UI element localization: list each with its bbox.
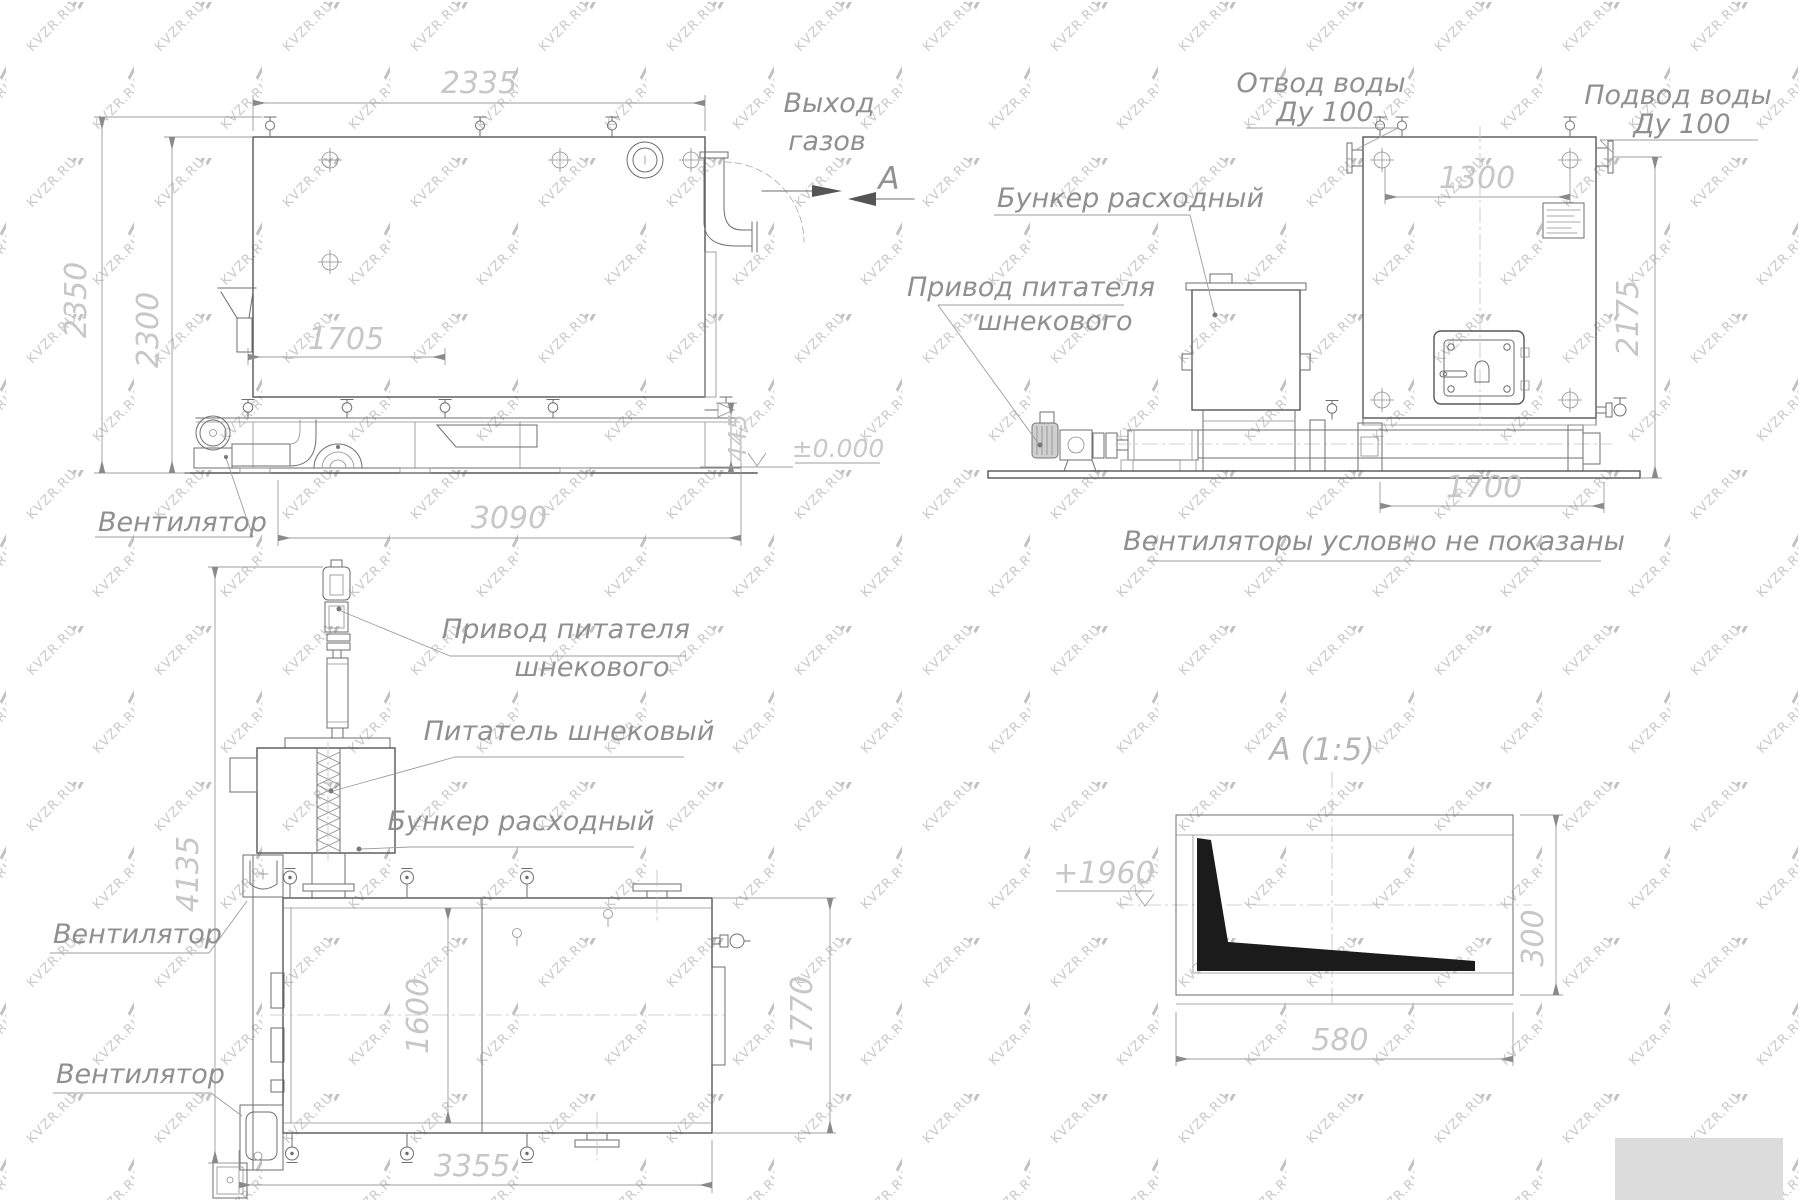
- label-water-inlet-line1: Подвод воды: [1584, 80, 1772, 111]
- label-gas-outlet-line2: газов: [788, 126, 866, 157]
- dim-inner-width: 1600: [401, 978, 436, 1054]
- watermark-layer: [0, 0, 1800, 1200]
- dim-base-length: 1700: [1446, 470, 1522, 505]
- dim-detail-height: 300: [1516, 909, 1551, 966]
- label-fan-lower: Вентилятор: [56, 1059, 225, 1090]
- label-screw-feeder: Питатель шнековый: [424, 716, 715, 747]
- detail-title: А (1:5): [1267, 732, 1374, 768]
- dim-overall-length-plan: 3355: [434, 1149, 510, 1184]
- dim-base-height: 445: [723, 414, 752, 462]
- dim-overall-height: 2350: [59, 262, 94, 338]
- dim-overall-length: 3090: [471, 501, 547, 536]
- label-fan-upper: Вентилятор: [53, 919, 222, 950]
- dim-ground-level: ±0.000: [792, 434, 885, 463]
- boiler-technical-drawing: KVZR.RU: [0, 0, 1800, 1200]
- dim-grate-length: 1705: [308, 322, 384, 357]
- dim-valve-span: 1300: [1439, 161, 1515, 196]
- label-water-inlet-line2: Ду 100: [1632, 109, 1730, 140]
- label-drive-front-line2: шнекового: [978, 306, 1133, 337]
- label-fan-side-view: Вентилятор: [98, 507, 267, 538]
- label-hopper-front: Бункер расходный: [997, 183, 1264, 214]
- note-fans-not-shown: Вентиляторы условно не показаны: [1123, 526, 1625, 557]
- watermark-corner-box: [1615, 1138, 1783, 1200]
- label-hopper-plan: Бункер расходный: [387, 806, 654, 837]
- drawing-canvas: KVZR.RU: [0, 0, 1800, 1200]
- section-letter: А: [876, 161, 899, 197]
- dim-boiler-width: 1770: [785, 976, 820, 1052]
- label-gas-outlet-line1: Выход: [783, 88, 874, 119]
- label-drive-plan-line2: шнекового: [515, 652, 670, 683]
- label-drive-front-line1: Привод питателя: [907, 272, 1155, 303]
- dim-overall-height-front: 2175: [1611, 280, 1646, 356]
- label-drive-plan-line1: Привод питателя: [442, 614, 690, 645]
- label-water-outlet-line2: Ду 100: [1275, 97, 1373, 128]
- dim-body-height: 2300: [131, 292, 166, 368]
- dim-overall-depth: 4135: [171, 836, 206, 912]
- dim-detail-width: 580: [1311, 1023, 1368, 1058]
- dim-top-width: 2335: [441, 66, 517, 101]
- dim-elevation: +1960: [1053, 856, 1154, 891]
- label-water-outlet-line1: Отвод воды: [1236, 68, 1405, 99]
